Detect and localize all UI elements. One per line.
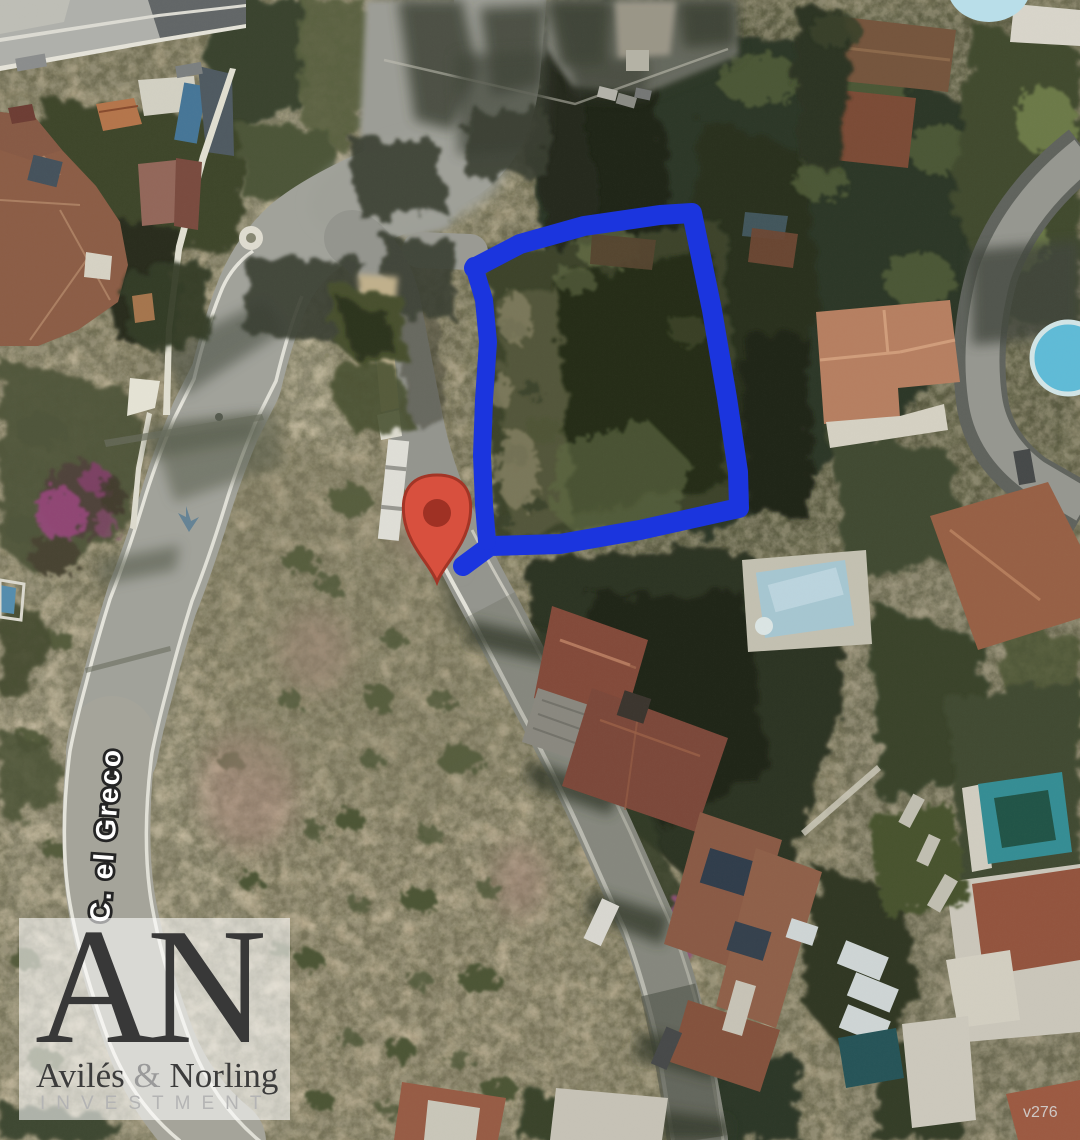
- svg-text:v276: v276: [1023, 1104, 1058, 1121]
